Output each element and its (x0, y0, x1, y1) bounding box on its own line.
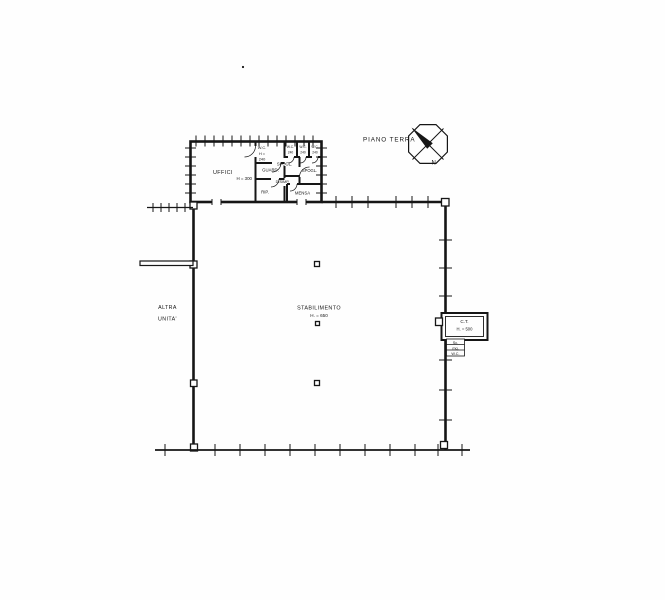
room-label-mensa: MENSA (295, 191, 310, 196)
room-label-spogliatoio-2: SPOGL. (302, 168, 317, 173)
room-height-uffici: H = 300 (237, 176, 253, 181)
adjacent-unit-wall (140, 261, 193, 266)
room-label-wc-1: W.C. (287, 145, 294, 149)
room-height-wc-main-1: H = (259, 151, 266, 156)
room-height-wc-1: 240 (288, 150, 294, 154)
room-label-wc-main: W.C. (258, 145, 266, 150)
room-label-ct: C.T. (460, 319, 468, 324)
room-label-wc-2: W.C. (299, 145, 306, 149)
column (315, 262, 320, 267)
room-label-spogliatoio-1: SPOGL. (277, 162, 292, 167)
room-label-ripostiglio: RIP. (261, 190, 269, 195)
room-label-guardaroba: GUARD. (262, 168, 279, 173)
adjacent-unit-label-1: ALTRA (158, 305, 177, 311)
drawing-title: PIANO TERRA (363, 137, 415, 144)
pillar (442, 199, 450, 207)
pillar (191, 380, 198, 387)
pillar (436, 318, 443, 326)
pillar (441, 442, 448, 449)
room-height-stabilimento: H. = 650 (310, 313, 328, 318)
ct-note-line-1: Sc. (453, 341, 459, 345)
adjacent-unit: ALTRA UNITA' (140, 261, 193, 323)
main-hall: STABILIMENTO H. = 650 (190, 196, 452, 451)
room-label-stabilimento: STABILIMENTO (297, 306, 341, 312)
compass-icon: N (409, 125, 448, 167)
column (316, 322, 320, 326)
room-label-uffici: UFFICI (213, 170, 233, 176)
ct-note-line-3: W.C. (451, 352, 459, 356)
room-label-wc-3: W.C. (311, 145, 318, 149)
room-height-wc-2: 240 (300, 150, 306, 154)
door-gap (212, 199, 221, 205)
floor-plan-svg: PIANO TERRA N UFFICI H = 300 W.C. H = 24… (0, 0, 665, 600)
room-height-wc-main-2: 240 (259, 157, 266, 162)
scan-speck (242, 66, 244, 68)
room-height-ct: H. = 500 (457, 327, 474, 332)
room-label-disimpegno: DISIMP. (276, 180, 290, 184)
office-block: UFFICI H = 300 W.C. H = 240 GUARD. RIP. … (185, 136, 327, 206)
site-boundary (147, 203, 470, 456)
title-block: PIANO TERRA (363, 137, 415, 144)
column (315, 381, 320, 386)
wc-strip-labels: W.C. 240 W.C. 240 W.C. 240 (287, 145, 319, 155)
door-gap (297, 199, 306, 205)
floor-plan-sheet: PIANO TERRA N UFFICI H = 300 W.C. H = 24… (0, 0, 665, 600)
adjacent-unit-label-2: UNITA' (158, 317, 177, 323)
room-height-wc-3: 240 (312, 150, 318, 154)
compass-north-label: N (432, 161, 436, 167)
ct-note-line-2: mq. (452, 346, 458, 350)
boiler-room: C.T. H. = 500 Sc. mq. W.C. (436, 313, 488, 356)
